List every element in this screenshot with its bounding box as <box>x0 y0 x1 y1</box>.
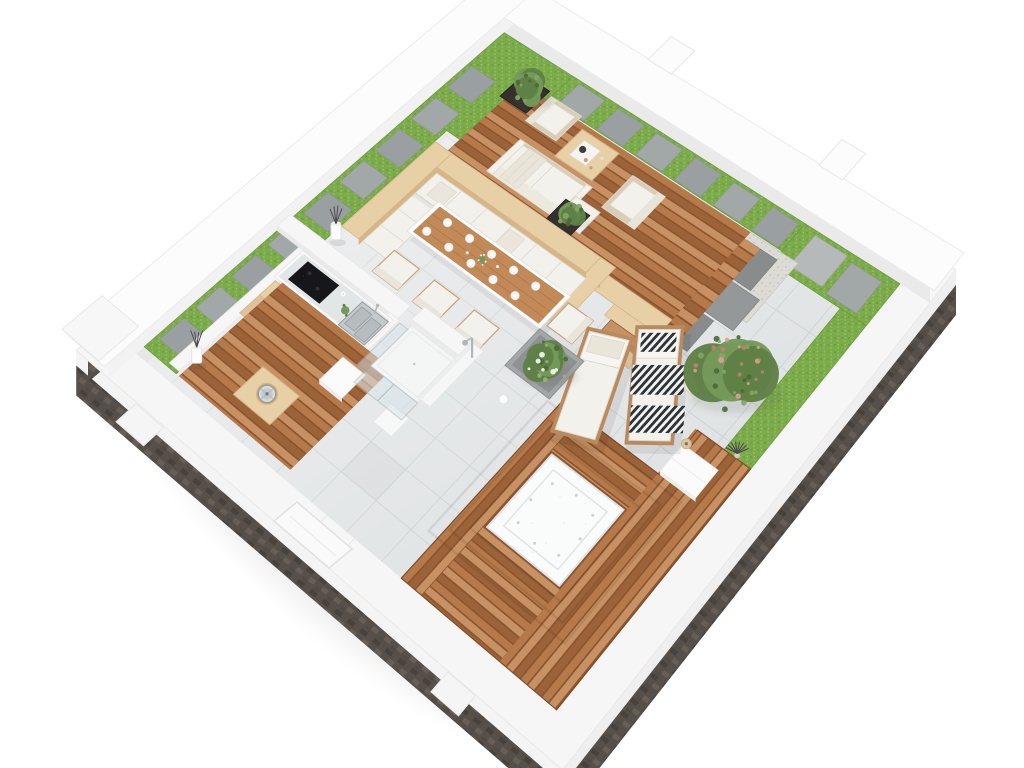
floor-plan-scene <box>0 0 1024 768</box>
floor-plan-3d <box>0 0 1024 768</box>
